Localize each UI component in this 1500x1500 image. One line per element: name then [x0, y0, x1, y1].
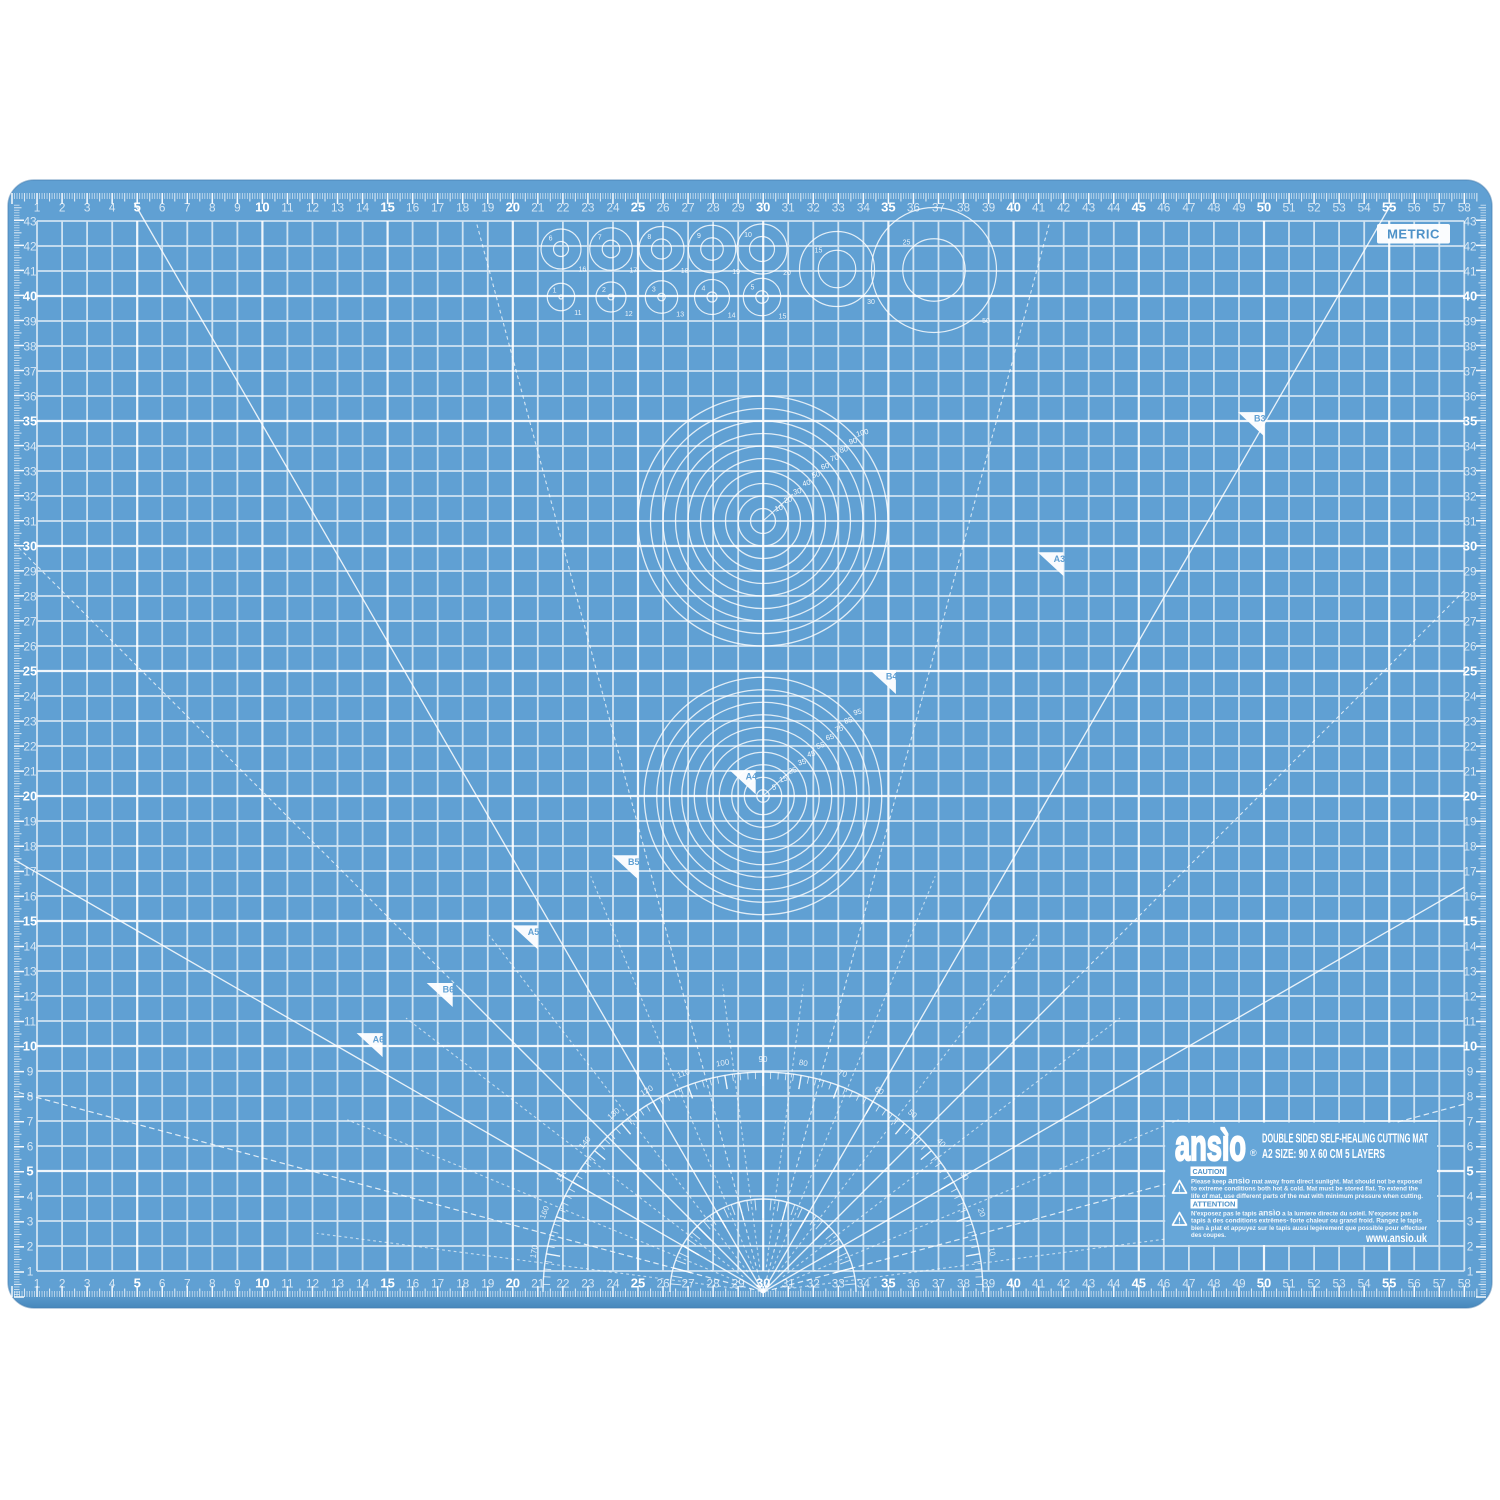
svg-text:11: 11	[574, 310, 581, 317]
svg-text:4: 4	[27, 1190, 34, 1204]
svg-text:41: 41	[1463, 265, 1476, 279]
svg-text:ATTENTION: ATTENTION	[1193, 1202, 1236, 1209]
svg-text:44: 44	[1107, 1277, 1121, 1291]
svg-text:11: 11	[281, 1277, 293, 1291]
svg-text:51: 51	[1282, 201, 1295, 215]
svg-text:13: 13	[676, 312, 684, 319]
svg-text:22: 22	[556, 1277, 569, 1291]
svg-text:24: 24	[23, 690, 37, 704]
svg-text:38: 38	[957, 1277, 971, 1291]
svg-text:58: 58	[1458, 1277, 1472, 1291]
svg-text:27: 27	[1463, 615, 1476, 629]
svg-text:1: 1	[34, 201, 41, 215]
svg-text:45: 45	[1132, 1276, 1146, 1291]
svg-text:6: 6	[549, 236, 553, 243]
svg-text:21: 21	[1463, 765, 1476, 779]
svg-text:9: 9	[234, 201, 241, 215]
svg-text:15: 15	[380, 1276, 394, 1291]
svg-text:18: 18	[456, 1277, 470, 1291]
svg-text:43: 43	[1082, 201, 1096, 215]
svg-text:10: 10	[744, 232, 752, 239]
svg-text:10: 10	[23, 1039, 37, 1054]
svg-text:20: 20	[506, 1276, 520, 1291]
svg-text:25: 25	[631, 1276, 645, 1291]
svg-text:13: 13	[331, 201, 345, 215]
svg-text:5: 5	[1466, 1164, 1473, 1179]
svg-text:A3: A3	[1054, 554, 1066, 564]
svg-text:20: 20	[1463, 789, 1477, 804]
svg-text:3: 3	[84, 1277, 91, 1291]
svg-text:90: 90	[759, 1055, 768, 1064]
svg-text:2: 2	[27, 1240, 34, 1254]
svg-text:B6: B6	[443, 985, 455, 995]
svg-text:1: 1	[34, 1277, 41, 1291]
svg-text:2: 2	[59, 1277, 66, 1291]
svg-text:43: 43	[1463, 215, 1477, 229]
svg-text:33: 33	[832, 201, 846, 215]
svg-text:58: 58	[1458, 201, 1472, 215]
svg-text:15: 15	[1463, 914, 1477, 929]
svg-text:35: 35	[23, 414, 37, 429]
svg-text:4: 4	[109, 1277, 116, 1291]
svg-text:12: 12	[1463, 990, 1476, 1004]
svg-text:55: 55	[1382, 1276, 1396, 1291]
svg-text:1: 1	[27, 1265, 34, 1279]
svg-text:2: 2	[1467, 1240, 1474, 1254]
svg-text:2: 2	[602, 287, 606, 294]
svg-text:6: 6	[159, 201, 166, 215]
svg-text:23: 23	[23, 715, 37, 729]
svg-text:38: 38	[1463, 340, 1477, 354]
svg-text:28: 28	[23, 590, 37, 604]
svg-text:38: 38	[23, 340, 37, 354]
svg-text:35: 35	[881, 200, 895, 215]
svg-text:56: 56	[1408, 1277, 1422, 1291]
svg-text:14: 14	[1463, 940, 1477, 954]
svg-text:3: 3	[27, 1215, 34, 1229]
svg-text:37: 37	[23, 365, 36, 379]
svg-text:!: !	[1178, 1185, 1181, 1194]
svg-text:27: 27	[682, 201, 695, 215]
svg-text:18: 18	[681, 268, 689, 275]
svg-text:life of mat, use different par: life of mat, use different parts of the …	[1191, 1193, 1423, 1200]
svg-text:5: 5	[26, 1164, 33, 1179]
svg-text:14: 14	[728, 313, 736, 320]
svg-text:2: 2	[59, 201, 66, 215]
svg-text:36: 36	[907, 1277, 921, 1291]
svg-text:18: 18	[456, 201, 470, 215]
svg-text:8: 8	[647, 234, 651, 241]
svg-text:33: 33	[1463, 465, 1477, 479]
svg-text:26: 26	[1463, 640, 1477, 654]
svg-text:8: 8	[209, 201, 216, 215]
svg-text:50: 50	[982, 318, 990, 325]
svg-text:29: 29	[1463, 565, 1476, 579]
svg-text:27: 27	[682, 1277, 695, 1291]
svg-text:41: 41	[23, 265, 36, 279]
svg-text:22: 22	[23, 740, 36, 754]
svg-text:4: 4	[109, 201, 116, 215]
svg-text:24: 24	[1463, 690, 1477, 704]
svg-text:41: 41	[1032, 201, 1045, 215]
svg-text:29: 29	[732, 201, 745, 215]
svg-text:25: 25	[631, 200, 645, 215]
svg-text:34: 34	[857, 201, 871, 215]
svg-text:37: 37	[932, 1277, 945, 1291]
svg-text:des coupes.: des coupes.	[1191, 1232, 1226, 1239]
svg-text:28: 28	[1463, 590, 1477, 604]
svg-text:24: 24	[606, 201, 620, 215]
svg-text:9: 9	[27, 1065, 34, 1079]
svg-text:19: 19	[23, 815, 36, 829]
svg-text:12: 12	[306, 201, 319, 215]
svg-text:50: 50	[1257, 200, 1271, 215]
svg-text:39: 39	[23, 315, 36, 329]
svg-text:A4: A4	[746, 772, 758, 782]
svg-text:A2 SIZE: 90 X 60 CM 5 LAYERS: A2 SIZE: 90 X 60 CM 5 LAYERS	[1262, 1147, 1385, 1161]
svg-text:45: 45	[1132, 200, 1146, 215]
svg-text:21: 21	[531, 201, 544, 215]
svg-text:tapis à des conditions extrême: tapis à des conditions extrêmes- forte c…	[1191, 1218, 1422, 1225]
svg-text:DOUBLE SIDED SELF-HEALING CUTT: DOUBLE SIDED SELF-HEALING CUTTING MAT	[1262, 1132, 1428, 1146]
svg-text:40: 40	[23, 289, 37, 304]
svg-text:20: 20	[506, 200, 520, 215]
svg-text:35: 35	[881, 1276, 895, 1291]
svg-text:®: ®	[1250, 1148, 1257, 1158]
svg-text:35: 35	[1463, 414, 1477, 429]
svg-text:19: 19	[481, 201, 494, 215]
svg-text:20: 20	[783, 270, 791, 277]
svg-text:52: 52	[1308, 1277, 1321, 1291]
svg-text:32: 32	[807, 1277, 820, 1291]
svg-text:40: 40	[1006, 200, 1020, 215]
svg-text:25: 25	[23, 664, 37, 679]
svg-text:7: 7	[598, 235, 602, 242]
svg-text:11: 11	[281, 201, 293, 215]
svg-text:5: 5	[134, 1276, 141, 1291]
svg-text:39: 39	[1463, 315, 1476, 329]
svg-text:30: 30	[23, 539, 37, 554]
svg-text:B4: B4	[886, 672, 898, 682]
svg-text:44: 44	[1107, 201, 1121, 215]
svg-text:16: 16	[23, 890, 37, 904]
svg-text:B3: B3	[1254, 414, 1266, 424]
svg-text:43: 43	[23, 215, 37, 229]
svg-text:28: 28	[707, 1277, 721, 1291]
svg-text:15: 15	[380, 200, 394, 215]
svg-text:18: 18	[1463, 840, 1477, 854]
svg-text:42: 42	[1463, 240, 1476, 254]
svg-text:29: 29	[23, 565, 36, 579]
svg-text:bien à plat et appuyez sur le: bien à plat et appuyez sur le tapis auss…	[1191, 1225, 1428, 1232]
svg-text:26: 26	[656, 201, 670, 215]
svg-text:3: 3	[1467, 1215, 1474, 1229]
svg-text:11: 11	[24, 1015, 36, 1029]
svg-text:32: 32	[1463, 490, 1476, 504]
svg-text:31: 31	[1463, 515, 1476, 529]
svg-text:9: 9	[697, 233, 701, 240]
svg-text:40: 40	[1463, 289, 1477, 304]
svg-text:3: 3	[652, 286, 656, 293]
svg-text:53: 53	[1333, 201, 1347, 215]
svg-text:17: 17	[1463, 865, 1476, 879]
svg-text:21: 21	[23, 765, 36, 779]
svg-text:30: 30	[1463, 539, 1477, 554]
svg-text:19: 19	[732, 269, 740, 276]
svg-text:14: 14	[356, 201, 370, 215]
svg-text:ansìo: ansìo	[1175, 1121, 1246, 1170]
svg-text:7: 7	[184, 201, 191, 215]
svg-text:13: 13	[1463, 965, 1477, 979]
svg-text:32: 32	[23, 490, 36, 504]
svg-text:A5: A5	[528, 927, 540, 937]
svg-text:CAUTION: CAUTION	[1193, 1169, 1225, 1176]
svg-text:41: 41	[1032, 1277, 1045, 1291]
svg-text:36: 36	[1463, 390, 1477, 404]
svg-text:METRIC: METRIC	[1387, 227, 1440, 242]
svg-text:to extreme conditions both hot: to extreme conditions both hot & cold. M…	[1191, 1186, 1418, 1193]
svg-text:57: 57	[1433, 1277, 1446, 1291]
svg-text:15: 15	[779, 314, 787, 321]
svg-text:33: 33	[832, 1277, 846, 1291]
svg-text:16: 16	[406, 1277, 420, 1291]
svg-text:15: 15	[815, 248, 823, 255]
svg-text:47: 47	[1182, 1277, 1195, 1291]
svg-text:14: 14	[23, 940, 37, 954]
svg-text:5: 5	[751, 285, 755, 292]
svg-text:49: 49	[1232, 201, 1245, 215]
svg-text:3: 3	[84, 201, 91, 215]
svg-text:16: 16	[1463, 890, 1477, 904]
svg-text:10: 10	[255, 200, 269, 215]
svg-text:40: 40	[1006, 1276, 1020, 1291]
svg-text:46: 46	[1157, 201, 1171, 215]
svg-text:23: 23	[1463, 715, 1477, 729]
svg-text:12: 12	[23, 990, 36, 1004]
svg-text:31: 31	[782, 201, 795, 215]
svg-text:32: 32	[807, 201, 820, 215]
svg-text:16: 16	[579, 266, 587, 273]
svg-text:22: 22	[556, 201, 569, 215]
svg-text:49: 49	[1232, 1277, 1245, 1291]
svg-text:8: 8	[209, 1277, 216, 1291]
svg-text:37: 37	[1463, 365, 1476, 379]
svg-text:23: 23	[581, 201, 595, 215]
svg-text:52: 52	[1308, 201, 1321, 215]
svg-text:26: 26	[23, 640, 37, 654]
svg-text:22: 22	[1463, 740, 1476, 754]
svg-text:4: 4	[701, 285, 705, 292]
svg-text:46: 46	[1157, 1277, 1171, 1291]
svg-text:6: 6	[1467, 1140, 1474, 1154]
svg-text:7: 7	[184, 1277, 191, 1291]
svg-text:53: 53	[1333, 1277, 1347, 1291]
svg-text:4: 4	[1467, 1190, 1474, 1204]
svg-text:18: 18	[23, 840, 37, 854]
svg-text:9: 9	[234, 1277, 241, 1291]
svg-text:www.ansio.uk: www.ansio.uk	[1365, 1233, 1427, 1245]
svg-text:17: 17	[431, 201, 444, 215]
svg-text:19: 19	[1463, 815, 1476, 829]
svg-text:39: 39	[982, 201, 995, 215]
svg-text:13: 13	[23, 965, 37, 979]
svg-text:B5: B5	[628, 857, 640, 867]
svg-text:54: 54	[1358, 201, 1372, 215]
svg-text:10: 10	[1463, 1039, 1477, 1054]
svg-text:25: 25	[903, 240, 911, 247]
svg-text:57: 57	[1433, 201, 1446, 215]
svg-text:25: 25	[1463, 664, 1477, 679]
svg-text:7: 7	[1467, 1115, 1474, 1129]
svg-text:31: 31	[23, 515, 36, 529]
svg-text:50: 50	[1257, 1276, 1271, 1291]
svg-text:47: 47	[1182, 201, 1195, 215]
svg-text:42: 42	[23, 240, 36, 254]
svg-text:20: 20	[23, 789, 37, 804]
svg-text:42: 42	[1057, 201, 1070, 215]
svg-text:56: 56	[1408, 201, 1422, 215]
svg-text:48: 48	[1207, 201, 1221, 215]
svg-text:9: 9	[1467, 1065, 1474, 1079]
svg-text:28: 28	[707, 201, 721, 215]
svg-text:24: 24	[606, 1277, 620, 1291]
svg-text:17: 17	[629, 267, 637, 274]
svg-text:15: 15	[23, 914, 37, 929]
svg-text:51: 51	[1282, 1277, 1295, 1291]
svg-text:33: 33	[23, 465, 37, 479]
svg-text:!: !	[1178, 1217, 1181, 1226]
svg-text:6: 6	[27, 1140, 34, 1154]
svg-text:A6: A6	[373, 1035, 385, 1045]
svg-text:54: 54	[1358, 1277, 1372, 1291]
svg-text:10: 10	[255, 1276, 269, 1291]
svg-text:1: 1	[1467, 1265, 1474, 1279]
svg-text:6: 6	[159, 1277, 166, 1291]
svg-text:14: 14	[356, 1277, 370, 1291]
svg-text:13: 13	[331, 1277, 345, 1291]
svg-text:7: 7	[27, 1115, 34, 1129]
svg-text:39: 39	[982, 1277, 995, 1291]
svg-text:12: 12	[306, 1277, 319, 1291]
svg-text:27: 27	[23, 615, 36, 629]
svg-text:42: 42	[1057, 1277, 1070, 1291]
svg-text:30: 30	[756, 200, 770, 215]
svg-text:8: 8	[1467, 1090, 1474, 1104]
svg-text:36: 36	[23, 390, 37, 404]
svg-text:43: 43	[1082, 1277, 1096, 1291]
svg-text:1: 1	[553, 288, 557, 295]
svg-text:16: 16	[406, 201, 420, 215]
svg-text:11: 11	[1464, 1015, 1476, 1029]
svg-text:34: 34	[1463, 440, 1477, 454]
svg-text:19: 19	[481, 1277, 494, 1291]
svg-text:23: 23	[581, 1277, 595, 1291]
svg-text:17: 17	[431, 1277, 444, 1291]
svg-text:48: 48	[1207, 1277, 1221, 1291]
svg-text:30: 30	[867, 299, 875, 306]
svg-text:34: 34	[23, 440, 37, 454]
svg-text:12: 12	[625, 311, 633, 318]
